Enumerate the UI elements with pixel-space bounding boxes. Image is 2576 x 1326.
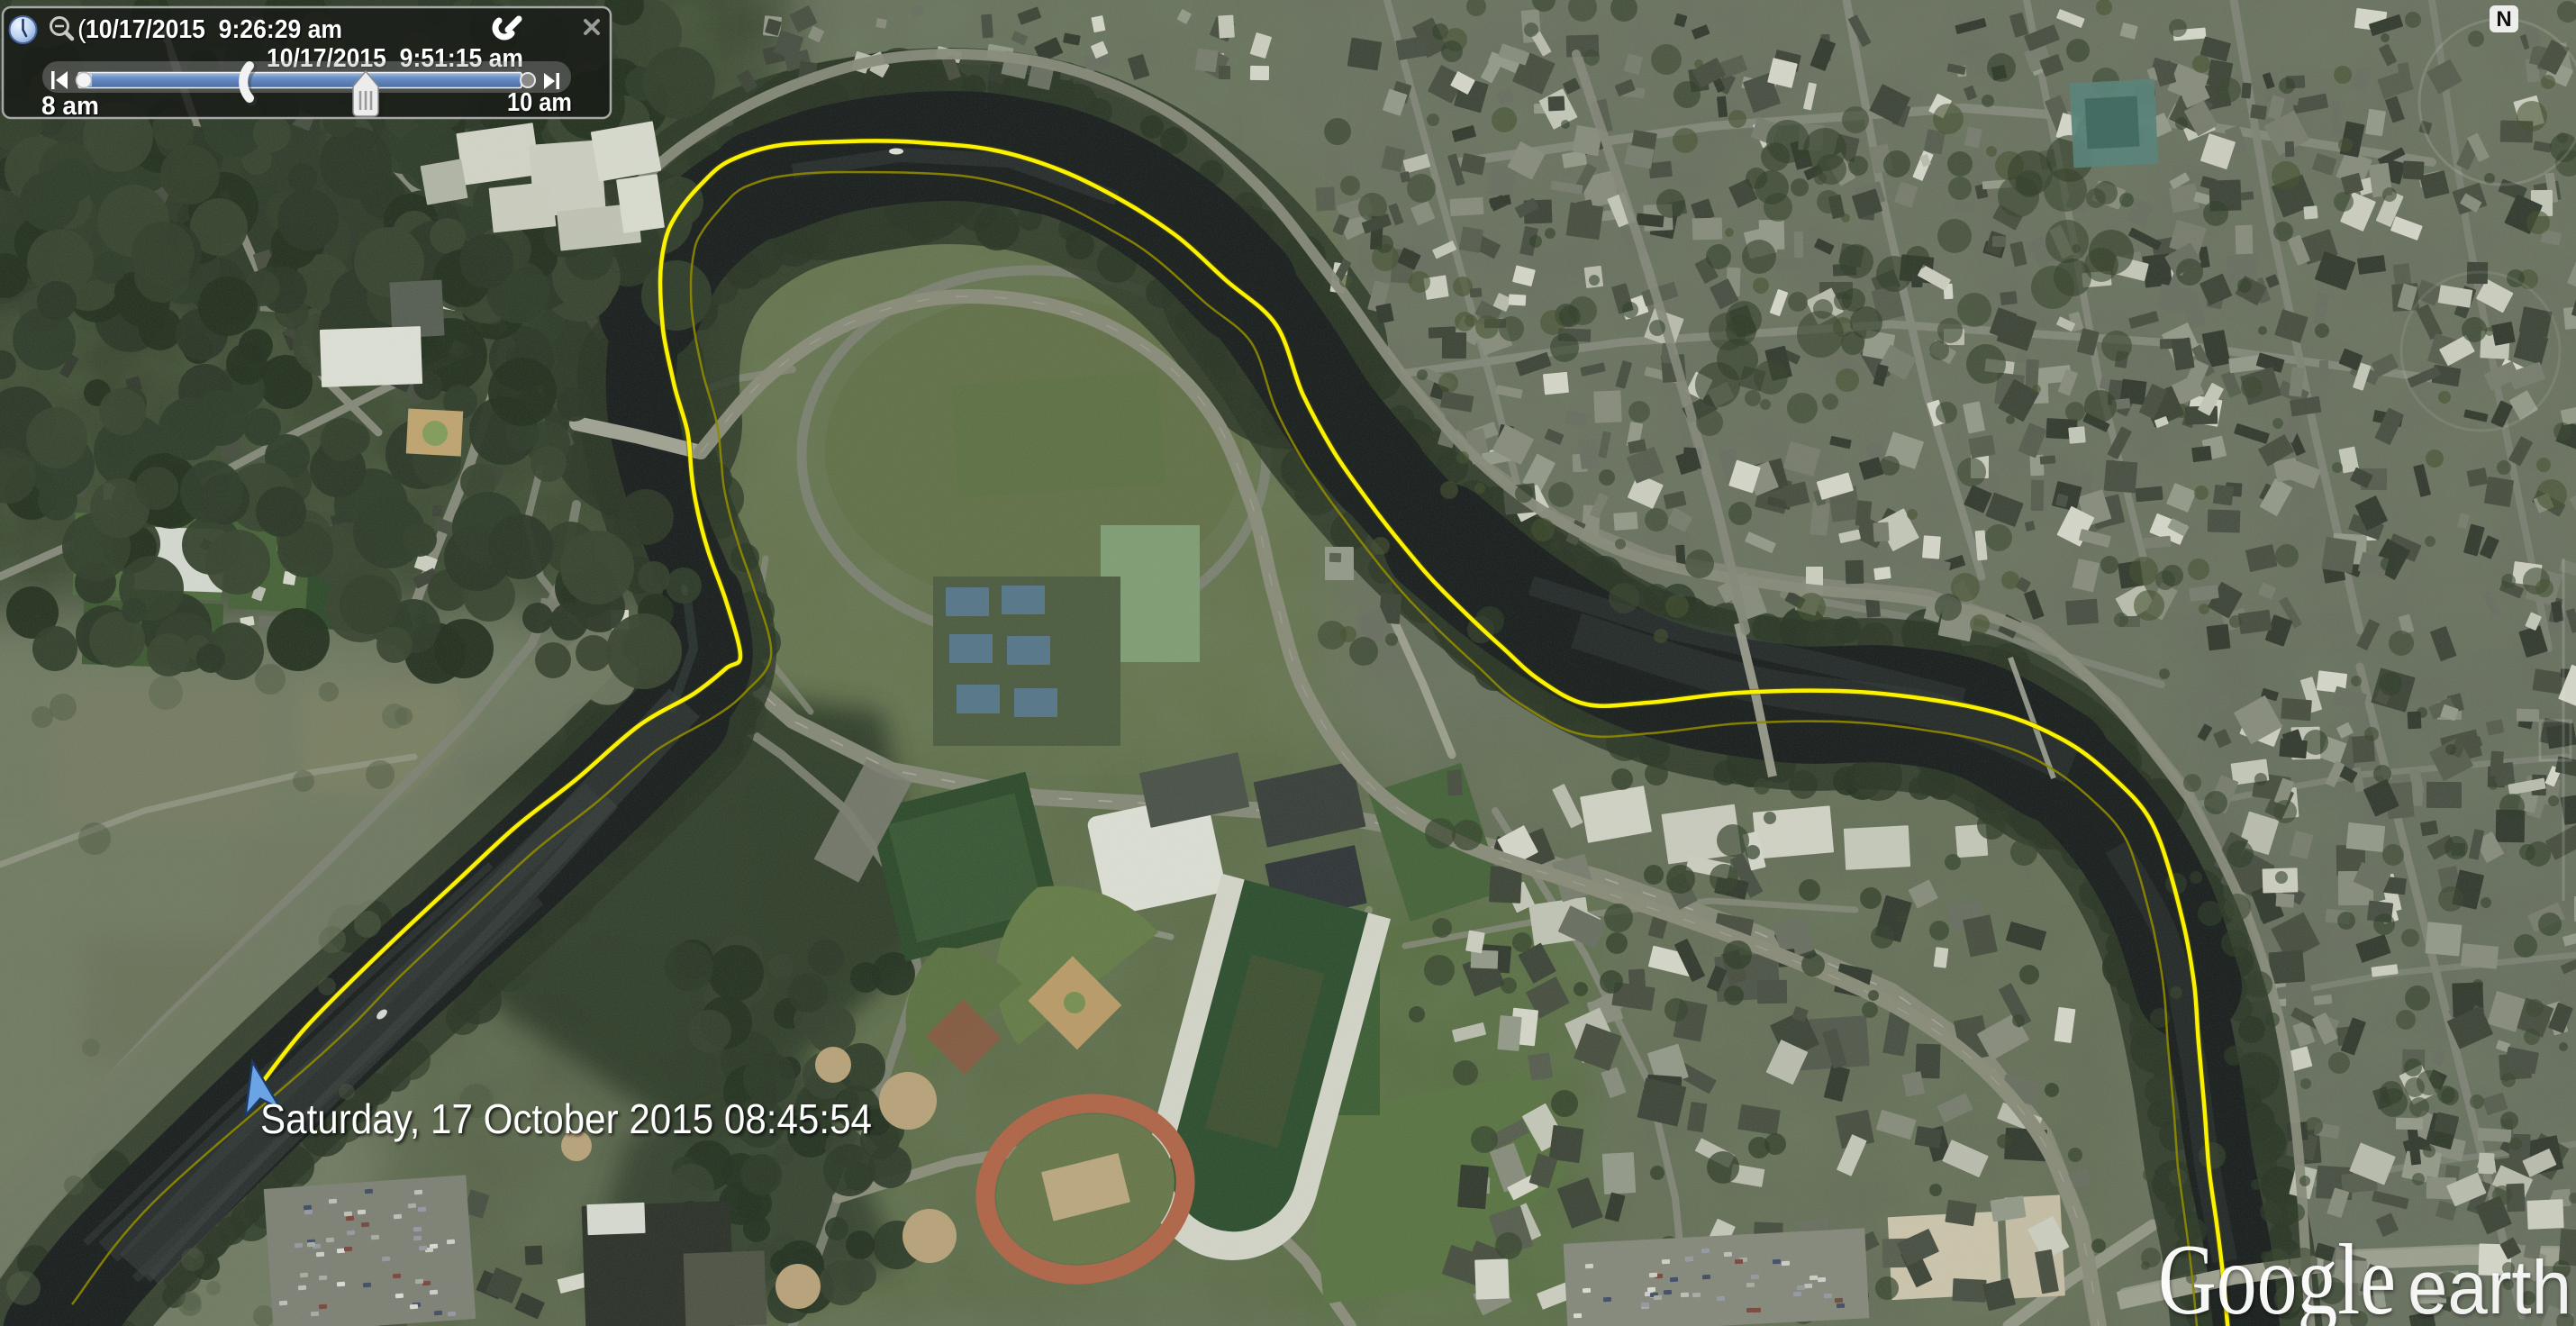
svg-text:N: N: [2496, 7, 2511, 32]
svg-text:earth: earth: [2408, 1245, 2571, 1326]
svg-text:10 am: 10 am: [507, 88, 572, 117]
svg-text:Saturday, 17 October 2015 08:4: Saturday, 17 October 2015 08:45:54: [260, 1095, 872, 1142]
svg-text:Google: Google: [2158, 1224, 2396, 1326]
svg-text:10/17/2015 9:26:29 am: 10/17/2015 9:26:29 am: [86, 15, 342, 44]
svg-text:8 am: 8 am: [41, 92, 99, 121]
